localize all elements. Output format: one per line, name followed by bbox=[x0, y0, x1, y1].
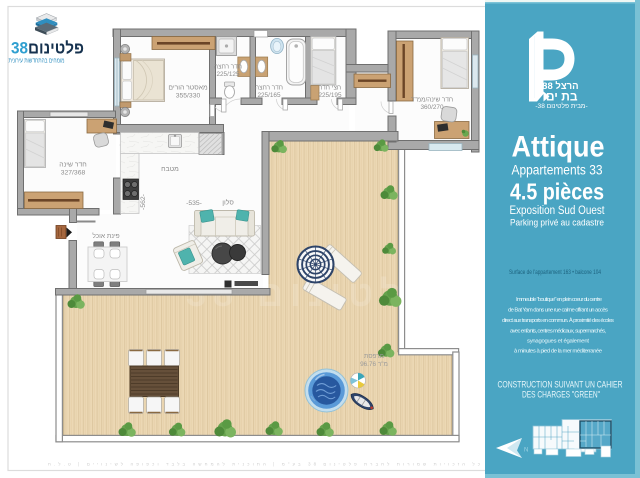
svg-text:חדר שינה/ממ"ד: חדר שינה/ממ"ד bbox=[411, 97, 453, 104]
svg-text:Immeuble "boutique" en plein c: Immeuble "boutique" en plein coeur du ce… bbox=[516, 297, 603, 303]
svg-text:de Bat Yam dans une rue calme: de Bat Yam dans une rue calme offrant un… bbox=[508, 308, 608, 314]
svg-text:-מבית פלטינום 38-: -מבית פלטינום 38- bbox=[535, 102, 587, 110]
svg-text:225/125: 225/125 bbox=[216, 71, 240, 78]
svg-text:פינת אוכל: פינת אוכל bbox=[92, 232, 119, 240]
svg-text:355/330: 355/330 bbox=[176, 93, 201, 100]
svg-text:-562-: -562- bbox=[140, 194, 147, 210]
svg-text:direct aux transports en commu: direct aux transports en commun. À proxi… bbox=[502, 317, 614, 324]
svg-text:חצי חדר: חצי חדר bbox=[319, 85, 341, 92]
svg-text:חדר רחצה: חדר רחצה bbox=[214, 64, 242, 71]
svg-text:synagogues et également: synagogues et également bbox=[527, 339, 589, 345]
svg-text:225/195: 225/195 bbox=[318, 92, 342, 99]
svg-text:מומחים בהתחדשות עירונית: מומחים בהתחדשות עירונית bbox=[9, 58, 65, 65]
svg-text:Appartements 33: Appartements 33 bbox=[512, 163, 603, 178]
svg-text:סלון: סלון bbox=[222, 199, 234, 207]
svg-text:327/368: 327/368 bbox=[61, 170, 86, 177]
svg-text:Surface de l'appartement 163: Surface de l'appartement 163 • balcone 1… bbox=[509, 269, 601, 276]
svg-text:בת ים: בת ים bbox=[546, 90, 578, 104]
svg-text:Parking privé au cadastre: Parking privé au cadastre bbox=[510, 218, 604, 229]
svg-text:חדר שינה: חדר שינה bbox=[59, 162, 86, 169]
svg-text:מרפסת: מרפסת bbox=[364, 353, 384, 360]
svg-text:225/165: 225/165 bbox=[257, 92, 281, 99]
svg-text:Attique: Attique bbox=[512, 131, 605, 164]
svg-text:פלטינום38: פלטינום38 bbox=[11, 40, 84, 58]
svg-text:à minutes à pied de la mer méd: à minutes à pied de la mer méditerranée bbox=[514, 349, 603, 355]
svg-text:avec enfants, centres médicaux: avec enfants, centres médicaux, supermar… bbox=[510, 329, 606, 335]
svg-text:4.5 pièces: 4.5 pièces bbox=[510, 179, 604, 205]
svg-text:360/270: 360/270 bbox=[420, 104, 444, 111]
svg-text:DES CHARGES "GREEN": DES CHARGES "GREEN" bbox=[522, 390, 600, 401]
svg-text:מאסטר הורים: מאסטר הורים bbox=[168, 85, 208, 92]
svg-text:N: N bbox=[524, 448, 528, 454]
svg-text:Exposition Sud Ouest: Exposition Sud Ouest bbox=[510, 205, 606, 217]
svg-text:96.76 מ"ר: 96.76 מ"ר bbox=[360, 361, 388, 368]
svg-text:חדר רחצה: חדר רחצה bbox=[255, 85, 283, 92]
svg-text:-535-: -535- bbox=[186, 200, 202, 207]
svg-text:מטבח: מטבח bbox=[161, 166, 179, 173]
